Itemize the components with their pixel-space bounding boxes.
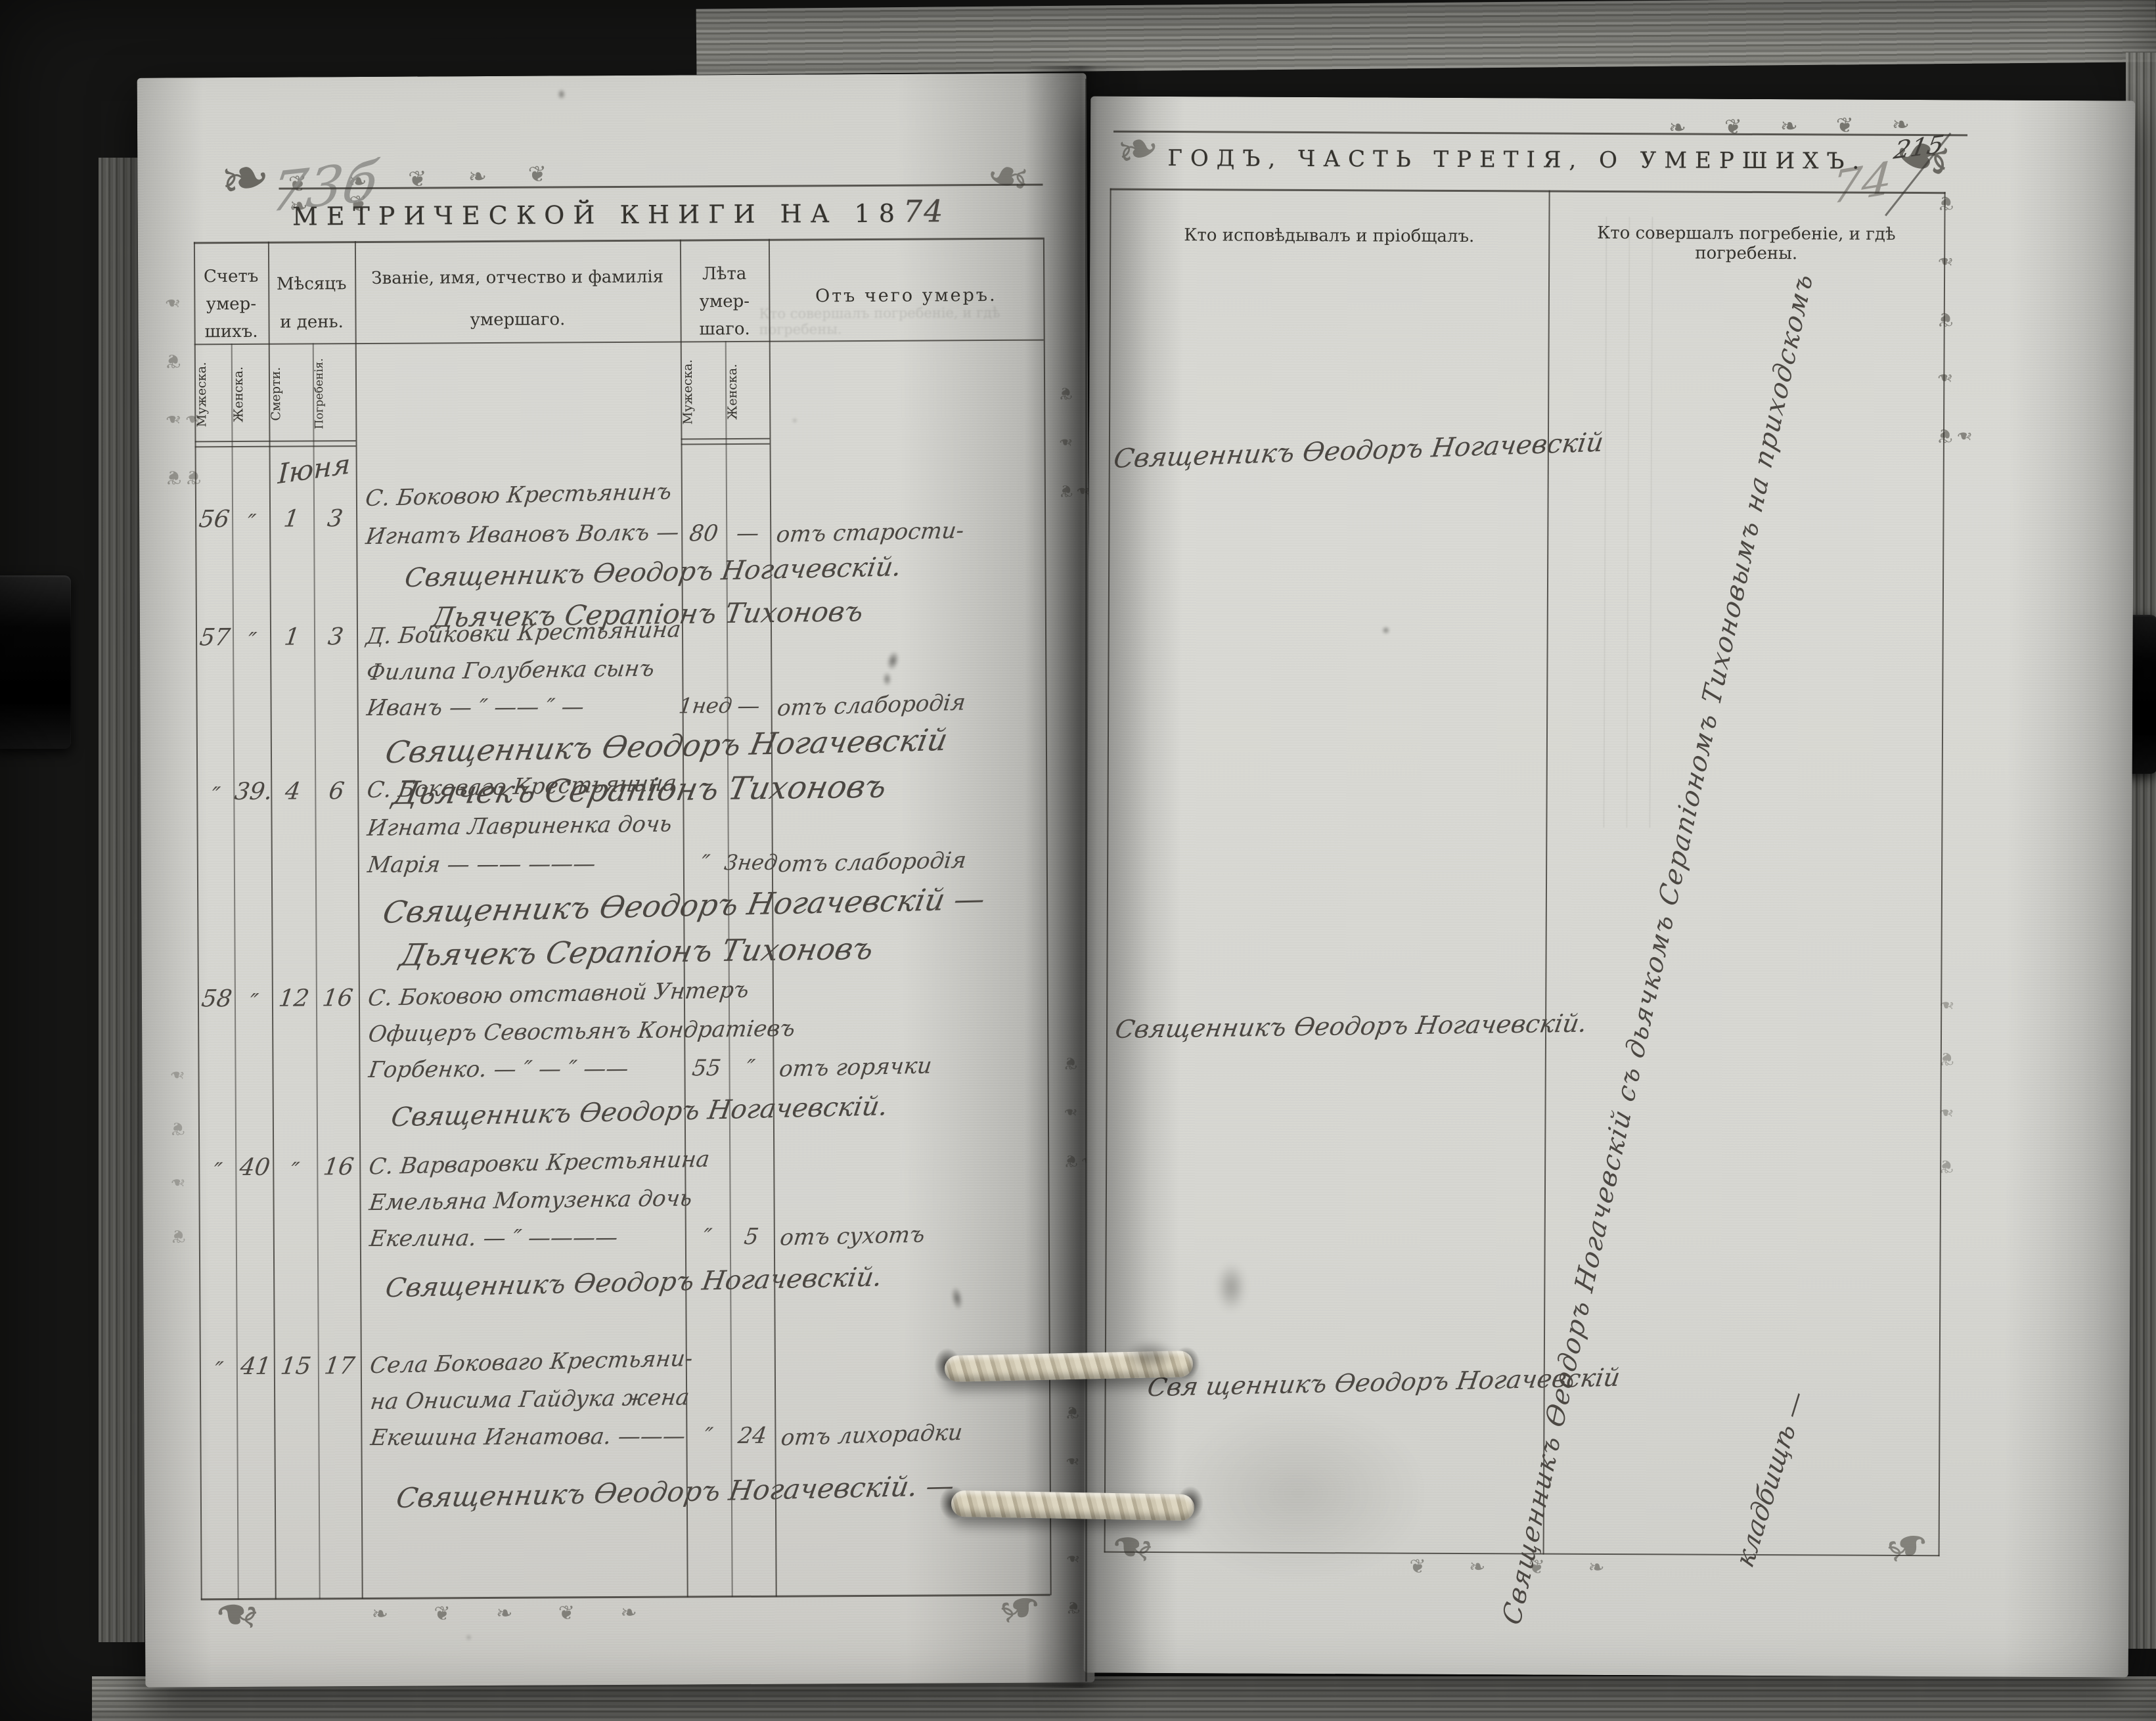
vignette-overlay bbox=[0, 0, 2156, 1721]
metrical-book-scan: ❧ ❦ ❧ ❦ ❧ ❦ ❧ ❦ ❧ ❦ ❧ ❦ ❧ ❦ ❧ ❦ ❧ ❦ ❧ ❦ … bbox=[0, 0, 2156, 1721]
